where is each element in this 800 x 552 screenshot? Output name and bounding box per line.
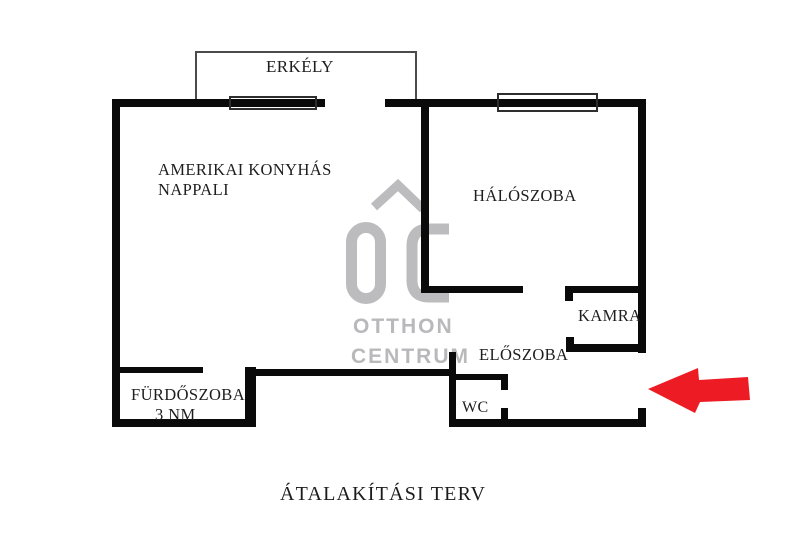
wall-pantry-bottom (566, 344, 646, 352)
bathroom-area-label: 3 NM (155, 405, 196, 425)
wall-pantry-left-upper (565, 286, 573, 301)
wall-bathroom-top (112, 367, 203, 373)
bedroom-window (497, 93, 598, 112)
wall-wc-right-upper (501, 374, 508, 390)
living-room-window (229, 96, 317, 110)
pantry-label: KAMRA (578, 306, 641, 326)
wall-left (112, 99, 120, 427)
logo-roof-icon (374, 185, 423, 209)
watermark-otthon: OTTHON (353, 315, 454, 339)
wall-living-bottom (256, 369, 455, 376)
logo-letter-o (352, 228, 381, 299)
wall-wc-top (449, 374, 503, 380)
balcony-label: ERKÉLY (266, 57, 334, 77)
wall-bedroom-bottom-left (421, 286, 523, 293)
wall-bathroom-right (245, 367, 256, 427)
living-room-label-line1: AMERIKAI KONYHÁS (158, 160, 332, 180)
wall-wc-left (449, 352, 456, 427)
wc-label: WC (462, 398, 489, 418)
hallway-label: ELŐSZOBA (479, 345, 568, 365)
entrance-arrow-icon (640, 360, 755, 420)
bedroom-label: HÁLÓSZOBA (473, 186, 577, 206)
floor-plan: OTTHON CENTRUM ERKÉLY AMERIKAI KONYHÁS N… (0, 0, 800, 552)
plan-title: ÁTALAKÍTÁSI TERV (280, 483, 486, 506)
bathroom-label: FÜRDŐSZOBA (131, 385, 245, 405)
living-room-label: AMERIKAI KONYHÁS NAPPALI (158, 160, 332, 199)
wall-bedroom-bottom-right (565, 286, 646, 293)
wall-bottom-right (449, 419, 646, 427)
wall-bedroom-left (421, 99, 429, 293)
living-room-label-line2: NAPPALI (158, 180, 332, 200)
